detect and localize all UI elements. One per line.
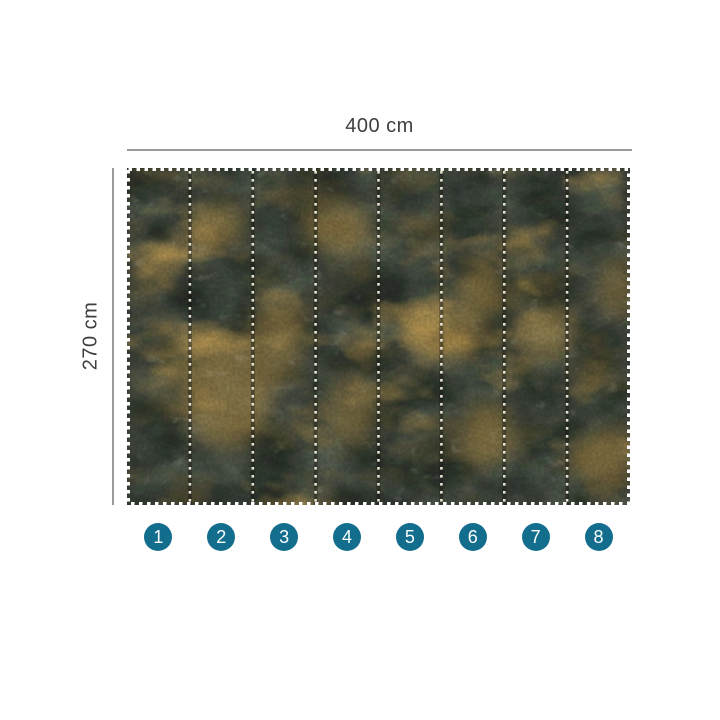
panel-number-badge-3: 3	[270, 523, 298, 551]
panel-number-badge-8: 8	[585, 523, 613, 551]
panel-number-row: 1 2 3 4 5 6 7 8	[127, 523, 630, 551]
panel-number-badge-4: 4	[333, 523, 361, 551]
panel-number-badge-7: 7	[522, 523, 550, 551]
panel-number-badge-1: 1	[144, 523, 172, 551]
mural-preview-image	[127, 168, 630, 505]
height-dimension-label: 270 cm	[80, 302, 103, 371]
mural-texture	[127, 168, 630, 505]
wallpaper-panel-diagram: 400 cm 270 cm	[0, 0, 720, 720]
width-dimension-label: 400 cm	[127, 115, 632, 138]
panel-number-badge-6: 6	[459, 523, 487, 551]
width-dimension-line	[127, 149, 632, 151]
panel-number-badge-5: 5	[396, 523, 424, 551]
height-dimension-line	[112, 168, 114, 505]
panel-number-badge-2: 2	[207, 523, 235, 551]
